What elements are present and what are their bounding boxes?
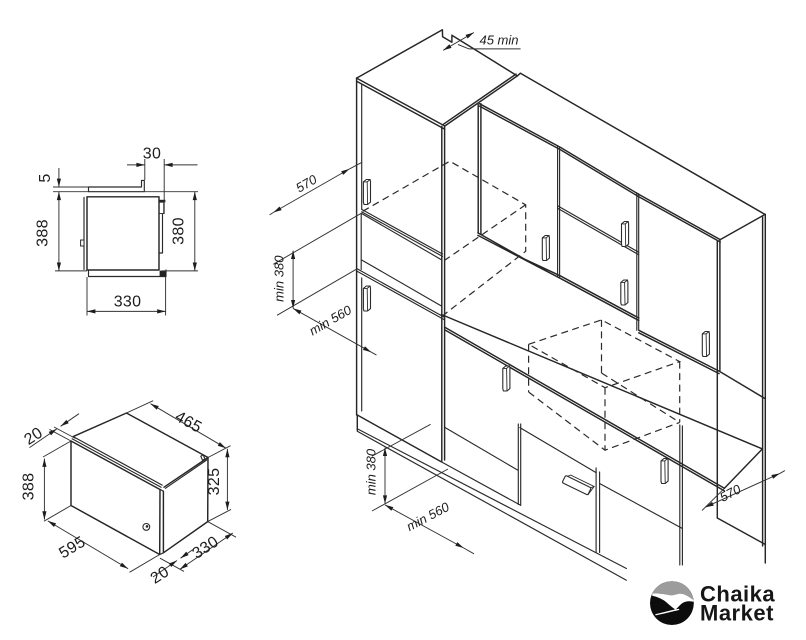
svg-text:595: 595 bbox=[56, 534, 88, 563]
svg-text:388: 388 bbox=[35, 219, 52, 247]
svg-text:570: 570 bbox=[293, 171, 320, 195]
svg-text:325: 325 bbox=[206, 468, 223, 496]
svg-text:20: 20 bbox=[148, 563, 173, 587]
svg-text:388: 388 bbox=[21, 473, 38, 501]
svg-text:570: 570 bbox=[717, 481, 744, 505]
svg-text:min 380: min 380 bbox=[364, 448, 379, 495]
svg-text:5: 5 bbox=[37, 173, 54, 182]
svg-text:380: 380 bbox=[171, 217, 188, 245]
svg-text:min 560: min 560 bbox=[306, 302, 354, 338]
svg-text:330: 330 bbox=[114, 294, 142, 311]
svg-text:330: 330 bbox=[189, 533, 221, 562]
svg-text:30: 30 bbox=[143, 146, 161, 163]
svg-text:20: 20 bbox=[21, 424, 46, 448]
svg-text:45 min: 45 min bbox=[479, 33, 518, 48]
svg-text:min 380: min 380 bbox=[272, 255, 287, 302]
svg-text:Market: Market bbox=[700, 601, 774, 626]
